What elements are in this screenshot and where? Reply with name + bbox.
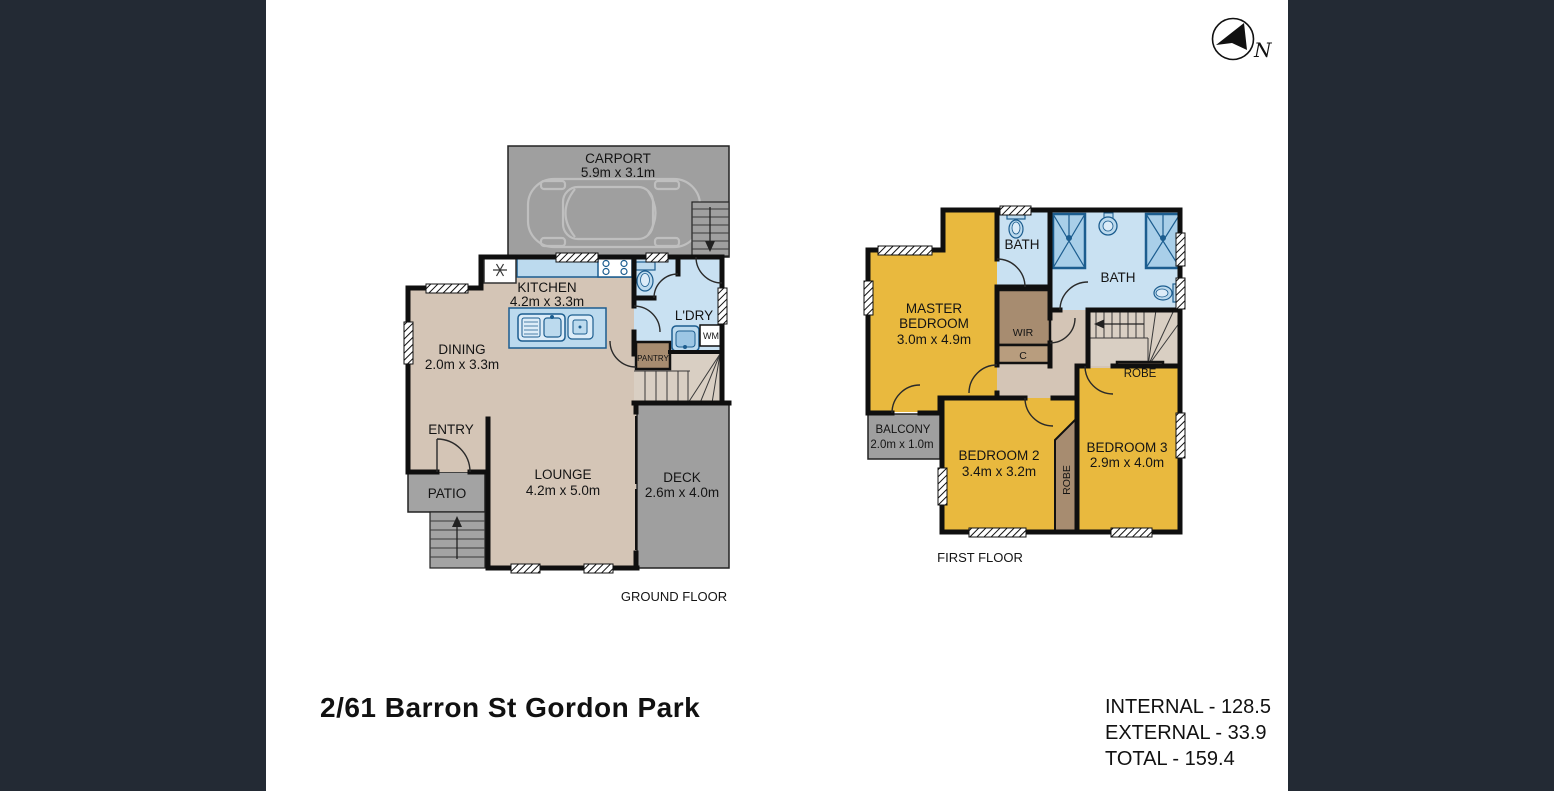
balcony-area xyxy=(868,414,940,459)
cooktop-icon xyxy=(598,258,632,277)
robe-bed2-label: ROBE xyxy=(1061,465,1073,495)
dining-label: DINING xyxy=(438,342,485,357)
first-floor-stairs xyxy=(1088,310,1180,366)
first-floor-plan: MASTER BEDROOM 3.0m x 4.9m BATH BATH WIR… xyxy=(864,206,1185,565)
shower-icon xyxy=(1053,214,1085,268)
kitchen-island xyxy=(509,308,606,348)
compass: N xyxy=(1213,19,1274,63)
dining-dims: 2.0m x 3.3m xyxy=(425,357,499,372)
compass-north-label: N xyxy=(1253,38,1273,62)
bedroom2-dims: 3.4m x 3.2m xyxy=(962,464,1036,479)
master-label-line2: BEDROOM xyxy=(899,316,969,331)
bath1-toilet-icon xyxy=(1007,212,1025,238)
bath1-label: BATH xyxy=(1004,237,1039,252)
area-summary: INTERNAL - 128.5 EXTERNAL - 33.9 TOTAL -… xyxy=(1105,694,1271,772)
carport-stairs xyxy=(692,202,729,256)
shower2-icon xyxy=(1146,214,1180,268)
bedroom3-dims: 2.9m x 4.0m xyxy=(1090,455,1164,470)
entry-label: ENTRY xyxy=(428,422,474,437)
fridge-icon xyxy=(484,258,516,283)
first-floor-title: FIRST FLOOR xyxy=(937,550,1023,565)
patio-label: PATIO xyxy=(428,486,467,501)
patio-steps xyxy=(430,512,485,568)
deck-dims: 2.6m x 4.0m xyxy=(645,485,719,500)
bedroom3-label: BEDROOM 3 xyxy=(1086,440,1167,455)
lounge-dims: 4.2m x 5.0m xyxy=(526,483,600,498)
toilet-icon xyxy=(636,262,655,291)
master-dims: 3.0m x 4.9m xyxy=(897,332,971,347)
cupboard-label: C xyxy=(1019,350,1027,362)
lounge-label: LOUNGE xyxy=(534,467,591,482)
bath2-label: BATH xyxy=(1100,270,1135,285)
laundry-tub-icon xyxy=(672,326,699,351)
floorplan-page: CARPORT 5.9m x 3.1m KITCHEN 4.2m x 3.3m … xyxy=(0,0,1554,791)
balcony-label: BALCONY xyxy=(876,424,931,436)
ground-floor-plan: CARPORT 5.9m x 3.1m KITCHEN 4.2m x 3.3m … xyxy=(404,146,729,604)
external-area: EXTERNAL - 33.9 xyxy=(1105,720,1271,746)
wir-label: WIR xyxy=(1013,327,1034,339)
bedroom2-label: BEDROOM 2 xyxy=(958,448,1039,463)
internal-area: INTERNAL - 128.5 xyxy=(1105,694,1271,720)
balcony-dims: 2.0m x 1.0m xyxy=(870,439,933,451)
kitchen-label: KITCHEN xyxy=(517,280,576,295)
washing-machine-label: WM xyxy=(703,331,719,341)
deck-label: DECK xyxy=(663,470,701,485)
floorplan-drawing: CARPORT 5.9m x 3.1m KITCHEN 4.2m x 3.3m … xyxy=(0,0,1554,791)
robe-bed3-label: ROBE xyxy=(1124,368,1157,380)
carport-label: CARPORT xyxy=(585,151,651,166)
carport-dims: 5.9m x 3.1m xyxy=(581,165,655,180)
kitchen-dims: 4.2m x 3.3m xyxy=(510,294,584,309)
laundry-label: L'DRY xyxy=(675,308,713,323)
ground-floor-title: GROUND FLOOR xyxy=(621,589,727,604)
master-label-line1: MASTER xyxy=(906,301,963,316)
total-area: TOTAL - 159.4 xyxy=(1105,746,1271,772)
property-address-title: 2/61 Barron St Gordon Park xyxy=(320,692,700,724)
pantry-label: PANTRY xyxy=(637,354,669,363)
